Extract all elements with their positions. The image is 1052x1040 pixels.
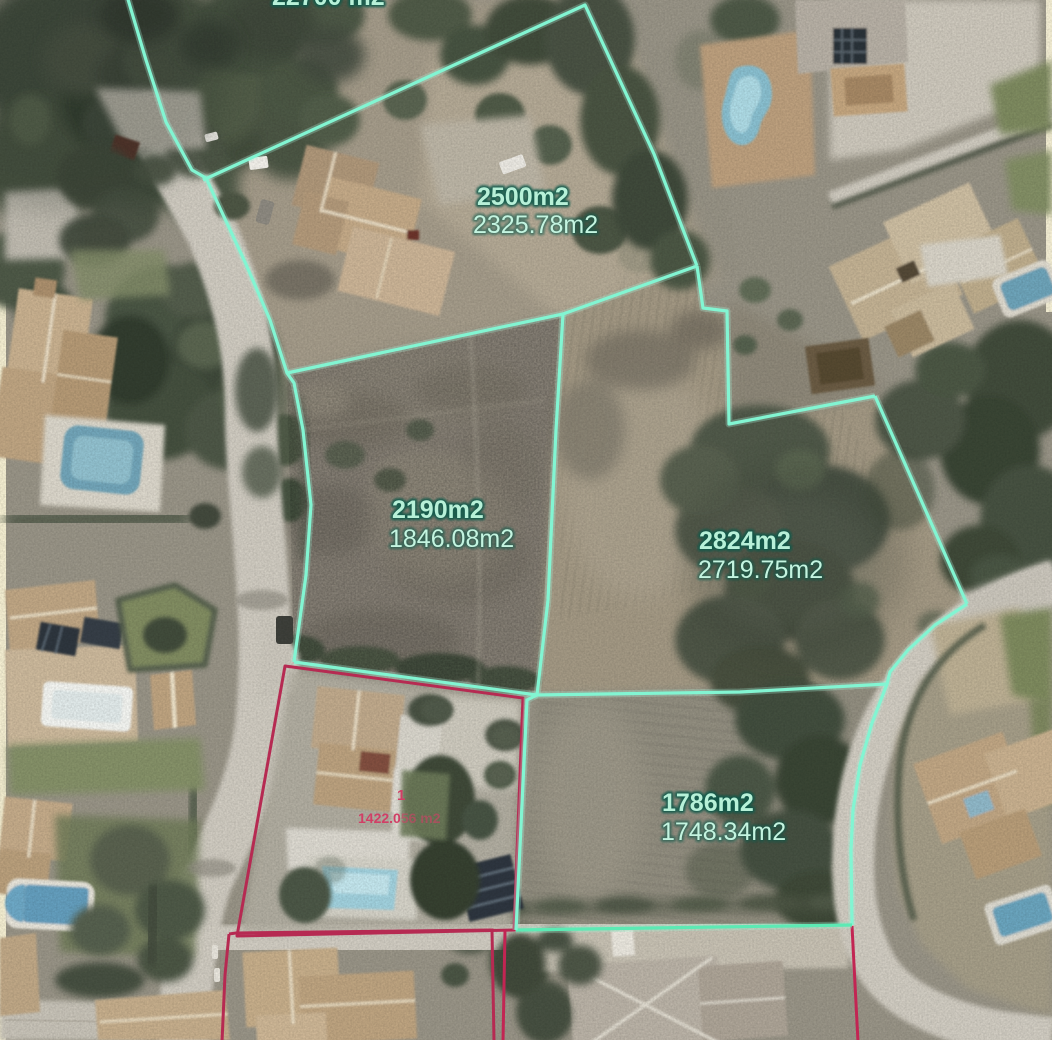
svg-text:22700 m2: 22700 m2 [272, 0, 385, 11]
svg-text:1422.056 m2: 1422.056 m2 [358, 810, 441, 826]
svg-text:2824m2: 2824m2 [699, 527, 791, 555]
svg-text:2190m2: 2190m2 [392, 496, 484, 524]
svg-text:2719.75m2: 2719.75m2 [698, 556, 823, 584]
svg-text:1786m2: 1786m2 [662, 789, 754, 817]
svg-text:1: 1 [397, 787, 405, 804]
svg-text:2325.78m2: 2325.78m2 [473, 211, 598, 239]
svg-text:2500m2: 2500m2 [477, 183, 569, 211]
svg-text:1748.34m2: 1748.34m2 [661, 818, 786, 846]
svg-text:1846.08m2: 1846.08m2 [389, 525, 514, 553]
